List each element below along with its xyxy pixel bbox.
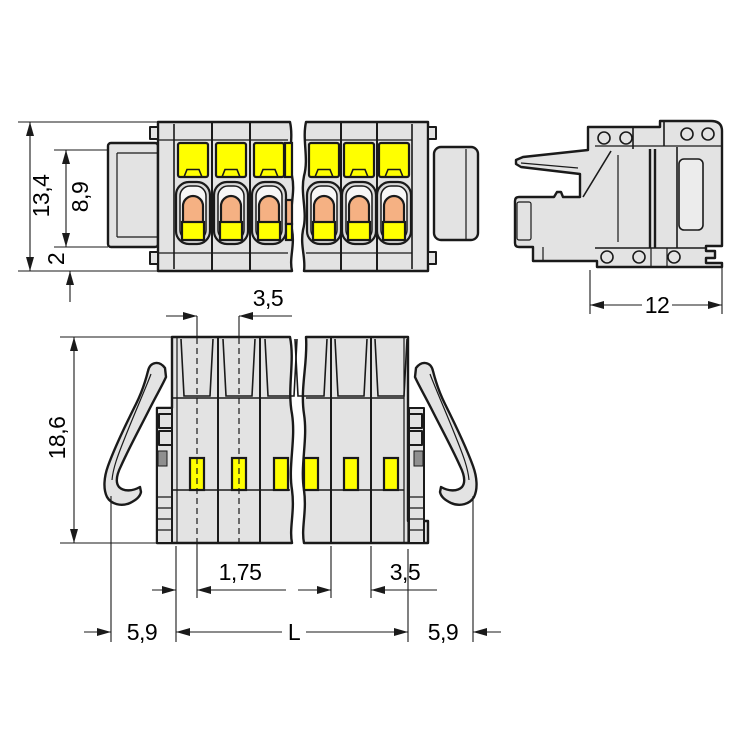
dim-side-depth: 12 bbox=[645, 292, 670, 318]
pole-4 bbox=[307, 143, 341, 244]
top-view bbox=[108, 122, 478, 271]
latch-left bbox=[104, 363, 172, 543]
pole-6 bbox=[377, 143, 411, 244]
dim-latch-right: 5,9 bbox=[428, 619, 458, 645]
technical-drawing: 13,4 8,9 2 12 bbox=[0, 0, 750, 750]
pole-3 bbox=[252, 143, 286, 244]
side-view: 12 bbox=[515, 121, 722, 318]
left-coding-tab bbox=[108, 143, 158, 247]
pole-5 bbox=[342, 143, 376, 244]
dim-base-offset: 2 bbox=[43, 253, 69, 265]
drawing-sheet: 13,4 8,9 2 12 bbox=[0, 0, 750, 750]
dim-overall-height: 13,4 bbox=[28, 174, 54, 217]
dimension-side-depth: 12 bbox=[590, 268, 722, 318]
dim-pitch-bottom: 3,5 bbox=[390, 559, 420, 585]
front-view bbox=[104, 337, 476, 543]
dim-half-pitch: 1,75 bbox=[219, 559, 262, 585]
dim-latch-left: 5,9 bbox=[127, 619, 157, 645]
dim-length: L bbox=[288, 619, 301, 645]
right-coding-tab bbox=[434, 147, 478, 240]
dim-front-height: 18,6 bbox=[44, 417, 70, 460]
latch-right bbox=[409, 363, 477, 543]
dim-pitch-top: 3,5 bbox=[253, 285, 283, 311]
pole-1 bbox=[176, 143, 210, 244]
pole-2 bbox=[214, 143, 248, 244]
dim-tab-height: 8,9 bbox=[67, 182, 93, 212]
